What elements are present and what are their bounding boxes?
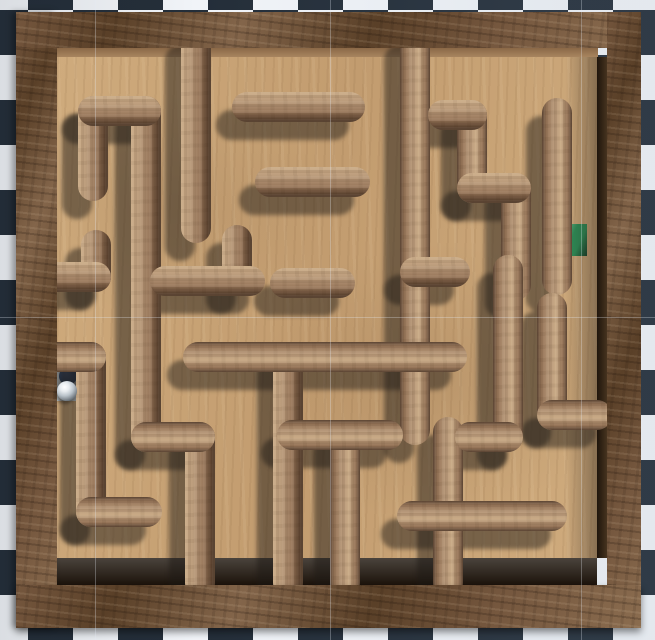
maze-wall — [397, 501, 567, 531]
maze-wall — [181, 27, 211, 243]
marble-ball[interactable] — [57, 381, 77, 401]
frame-bottom — [16, 585, 641, 628]
maze-wall — [131, 422, 215, 452]
frame-top — [16, 12, 641, 48]
maze-wall — [255, 167, 370, 197]
frame-right — [607, 12, 641, 628]
maze-wall — [428, 100, 487, 130]
maze-wall — [400, 27, 430, 445]
maze-wall — [78, 96, 161, 126]
maze-wall — [273, 342, 303, 598]
maze-wall — [232, 92, 365, 122]
maze-wall — [76, 497, 162, 527]
maze-wall — [400, 257, 470, 287]
maze-wall — [455, 422, 523, 452]
maze-wall — [150, 266, 265, 296]
maze-wall — [183, 342, 467, 372]
maze-wall — [542, 98, 572, 295]
maze-wall — [270, 268, 355, 298]
frame-left — [16, 12, 57, 628]
game-viewport[interactable] — [0, 0, 655, 640]
maze-wall — [537, 400, 612, 430]
maze-wall — [457, 173, 531, 203]
maze-wall — [277, 420, 403, 450]
